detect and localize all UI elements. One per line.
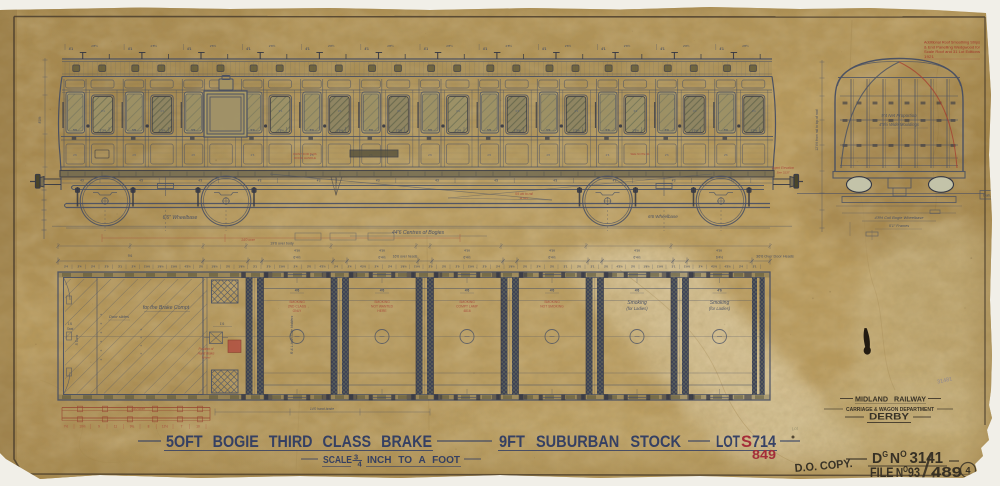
svg-text:SMOKING: SMOKING (374, 300, 390, 304)
svg-text:1'9½: 1'9½ (508, 265, 515, 269)
svg-text:3'1: 3'1 (515, 109, 519, 113)
svg-text:4'2: 4'2 (258, 179, 262, 183)
svg-text:1'9½: 1'9½ (400, 265, 407, 269)
svg-text:4'10: 4'10 (634, 249, 640, 253)
svg-text:2'4: 2'4 (132, 265, 136, 269)
svg-text:1'9½: 1'9½ (171, 265, 178, 269)
svg-text:4'6: 4'6 (465, 289, 470, 293)
svg-text:6'4½: 6'4½ (378, 256, 385, 260)
svg-text:2'6: 2'6 (546, 153, 550, 157)
svg-text:1'3½: 1'3½ (632, 129, 639, 133)
svg-text:4'1: 4'1 (128, 47, 133, 51)
svg-text:16'6 over heads: 16'6 over heads (393, 255, 418, 259)
svg-text:2'0: 2'0 (105, 265, 109, 269)
svg-text:5'0: 5'0 (605, 128, 609, 132)
svg-text:2'4: 2'4 (78, 265, 82, 269)
svg-text:14'0 over: 14'0 over (131, 407, 146, 411)
svg-text:2'6: 2'6 (251, 153, 255, 157)
svg-text:2'4: 2'4 (91, 265, 95, 269)
svg-text:10½: 10½ (79, 425, 86, 429)
svg-text:9'4 Net Proportion: 9'4 Net Proportion (881, 113, 917, 118)
svg-text:2'4: 2'4 (294, 265, 298, 269)
svg-text:3'1: 3'1 (338, 109, 342, 113)
svg-text:3'1: 3'1 (279, 109, 283, 113)
svg-text:4'1: 4'1 (720, 47, 725, 51)
svg-text:2'4: 2'4 (496, 265, 500, 269)
svg-text:4'1: 4'1 (187, 47, 192, 51)
svg-text:849: 849 (752, 448, 776, 462)
svg-text:Position of: Position of (199, 347, 215, 351)
svg-text:14'0 hand brake: 14'0 hand brake (310, 407, 334, 411)
svg-text:MIDLAND RAILWAY: MIDLAND RAILWAY (855, 395, 926, 404)
svg-text:4'6: 4'6 (635, 289, 640, 293)
svg-text:2'6: 2'6 (665, 153, 669, 157)
svg-text:2'6: 2'6 (487, 153, 491, 157)
svg-text:LOT: LOT (716, 433, 740, 451)
svg-text:5'0: 5'0 (665, 128, 669, 132)
svg-text:2'6: 2'6 (132, 153, 136, 157)
svg-text:2'8½: 2'8½ (328, 44, 335, 48)
svg-text:4'1: 4'1 (542, 47, 547, 51)
svg-text:ONLY: ONLY (293, 309, 303, 313)
svg-text:2'8½: 2'8½ (742, 44, 749, 48)
svg-text:2'8½: 2'8½ (150, 44, 157, 48)
svg-text:1'9½: 1'9½ (414, 265, 421, 269)
svg-text:4'6: 4'6 (380, 289, 385, 293)
svg-text:4'2½: 4'2½ (319, 265, 326, 269)
svg-text:1'3½: 1'3½ (455, 129, 462, 133)
svg-text:for the Brake Compt: for the Brake Compt (143, 305, 190, 311)
svg-text:SEE NOTE 31: SEE NOTE 31 (630, 152, 650, 156)
svg-text:1'9½: 1'9½ (144, 265, 151, 269)
svg-text:HERE: HERE (377, 309, 387, 313)
svg-text:2'8½: 2'8½ (387, 44, 394, 48)
svg-text:19'6 over body: 19'6 over body (270, 242, 294, 246)
svg-text:Agent Elevation: Agent Elevation (771, 166, 795, 170)
svg-text:1'9½: 1'9½ (279, 265, 286, 269)
svg-text:6'4½: 6'4½ (548, 256, 555, 260)
svg-text:COMPT LAMP: COMPT LAMP (456, 305, 479, 309)
svg-text:5'0: 5'0 (369, 128, 373, 132)
svg-text:3'1: 3'1 (591, 265, 595, 269)
svg-text:2'0: 2'0 (429, 265, 433, 269)
svg-text:1'9½: 1'9½ (657, 265, 664, 269)
svg-text:4'2: 4'2 (435, 179, 439, 183)
svg-text:4'1: 4'1 (305, 47, 310, 51)
svg-text:9FT SUBURBAN STOCK: 9FT SUBURBAN STOCK (499, 433, 681, 451)
svg-text:2'0: 2'0 (267, 265, 271, 269)
svg-text:2'6: 2'6 (606, 153, 610, 157)
svg-text:3'1: 3'1 (101, 109, 105, 113)
svg-text:4'1: 4'1 (483, 47, 488, 51)
svg-text:2'8½: 2'8½ (505, 44, 512, 48)
svg-text:2'6: 2'6 (73, 153, 77, 157)
svg-text:5'0: 5'0 (132, 128, 136, 132)
svg-text:3'1: 3'1 (564, 265, 568, 269)
svg-text:5'0: 5'0 (73, 128, 77, 132)
svg-text:R & L both Side Holders: R & L both Side Holders (290, 316, 294, 355)
svg-text:5'0: 5'0 (724, 128, 728, 132)
svg-text:8'0½: 8'0½ (38, 116, 42, 123)
svg-text:4'1: 4'1 (365, 47, 370, 51)
svg-text:3'1: 3'1 (634, 109, 638, 113)
svg-text:2'4: 2'4 (388, 265, 392, 269)
svg-text:5 Tons: 5 Tons (75, 334, 79, 345)
svg-text:1'9½: 1'9½ (238, 265, 245, 269)
svg-text:2'0: 2'0 (577, 265, 581, 269)
svg-text:4'1: 4'1 (69, 47, 74, 51)
svg-text:at tare: at tare (520, 196, 529, 200)
svg-text:2'0: 2'0 (199, 265, 203, 269)
svg-text:3'1: 3'1 (456, 109, 460, 113)
svg-text:12½: 12½ (162, 425, 169, 429)
svg-text:2'4: 2'4 (739, 265, 743, 269)
svg-text:4'1: 4'1 (246, 47, 251, 51)
svg-text:1'9½: 1'9½ (468, 265, 475, 269)
svg-text:4'2½: 4'2½ (616, 265, 623, 269)
svg-text:5OFT BOGIE THIRD CLASS BRAKE: 5OFT BOGIE THIRD CLASS BRAKE (166, 433, 432, 451)
svg-text:4'2½: 4'2½ (711, 265, 718, 269)
svg-text:1'9½: 1'9½ (684, 265, 691, 269)
svg-text:4'2: 4'2 (494, 179, 498, 183)
svg-text:7½: 7½ (64, 425, 69, 429)
svg-text:1'3½: 1'3½ (336, 129, 343, 133)
svg-text:1'3½: 1'3½ (573, 129, 580, 133)
svg-text:1'6: 1'6 (220, 322, 225, 326)
svg-text:Additional Roof Smoothing Stri: Additional Roof Smoothing Strips (924, 41, 980, 45)
svg-text:6'4½: 6'4½ (633, 256, 640, 260)
svg-text:2'8½: 2'8½ (446, 44, 453, 48)
svg-text:4'2: 4'2 (672, 179, 676, 183)
svg-text:4'2: 4'2 (553, 179, 557, 183)
svg-text:1'3½: 1'3½ (100, 129, 107, 133)
svg-text:2'4: 2'4 (348, 265, 352, 269)
svg-text:(for Ladies): (for Ladies) (709, 306, 731, 311)
svg-text:4'10: 4'10 (716, 249, 722, 253)
svg-text:4'1: 4'1 (660, 47, 665, 51)
svg-text:9¾: 9¾ (130, 425, 135, 429)
svg-text:6'6″ Wheelbase: 6'6″ Wheelbase (163, 215, 198, 221)
svg-text:2ND CLASS: 2ND CLASS (288, 305, 307, 309)
svg-text:3'1: 3'1 (753, 265, 757, 269)
svg-text:14'0 over: 14'0 over (241, 238, 256, 242)
svg-text:2'8½: 2'8½ (565, 44, 572, 48)
svg-text:4816: 4816 (463, 309, 471, 313)
svg-text:2'0: 2'0 (456, 265, 460, 269)
svg-text:S: S (741, 433, 752, 451)
svg-text:6'4½: 6'4½ (293, 256, 300, 260)
svg-text:2'8½: 2'8½ (624, 44, 631, 48)
svg-text:Wheel: Wheel (202, 356, 211, 360)
svg-text:4'8½ Coil Bogie Wheelbase: 4'8½ Coil Bogie Wheelbase (874, 215, 924, 220)
svg-text:(for Ladies): (for Ladies) (626, 306, 648, 311)
svg-text:4'10: 4'10 (549, 249, 555, 253)
svg-text:2'0: 2'0 (226, 265, 230, 269)
svg-text:10: 10 (196, 425, 200, 429)
svg-text:1'9½: 1'9½ (643, 265, 650, 269)
svg-text:2'6: 2'6 (428, 153, 432, 157)
svg-text:36'6 Over Door Heads: 36'6 Over Door Heads (756, 255, 794, 259)
svg-text:4'2: 4'2 (80, 179, 84, 183)
svg-text:1'3½: 1'3½ (691, 129, 698, 133)
svg-text:1'3½: 1'3½ (514, 129, 521, 133)
svg-text:2'0: 2'0 (550, 265, 554, 269)
svg-text:See 3137: See 3137 (777, 171, 790, 175)
svg-text:4'2: 4'2 (139, 179, 143, 183)
svg-text:5'0: 5'0 (310, 128, 314, 132)
svg-text:4'2½: 4'2½ (184, 265, 191, 269)
svg-text:5'0: 5'0 (487, 128, 491, 132)
svg-text:SMOKING: SMOKING (289, 300, 305, 304)
svg-text:4: 4 (965, 466, 970, 476)
svg-text:4'10: 4'10 (294, 249, 300, 253)
svg-text:3'1: 3'1 (574, 109, 578, 113)
svg-text:+: + (140, 328, 142, 332)
svg-text:2'6: 2'6 (191, 153, 195, 157)
svg-text:2'8½: 2'8½ (683, 44, 690, 48)
svg-text:2'4: 2'4 (699, 265, 703, 269)
svg-text:4'2½: 4'2½ (360, 265, 367, 269)
svg-text:5'0: 5'0 (546, 128, 550, 132)
svg-text:1'9½: 1'9½ (211, 265, 218, 269)
svg-text:Seat: Seat (67, 327, 74, 331)
svg-text:2'0: 2'0 (442, 265, 446, 269)
svg-text:3'1: 3'1 (672, 265, 676, 269)
svg-text:5'0: 5'0 (191, 128, 195, 132)
svg-text:Scale Roof and 31 Lot Editions: Scale Roof and 31 Lot Editions (924, 50, 980, 54)
svg-text:NOT SMOKING: NOT SMOKING (540, 305, 564, 309)
svg-text:8: 8 (148, 425, 150, 429)
svg-text:11: 11 (114, 425, 118, 429)
svg-text:2'0: 2'0 (483, 265, 487, 269)
svg-text:Door slides: Door slides (109, 314, 129, 319)
svg-text:DOOR HANDLE: DOOR HANDLE (294, 156, 316, 160)
svg-text:4'10: 4'10 (464, 249, 470, 253)
svg-text:3'1: 3'1 (160, 109, 164, 113)
svg-text:4'2½: 4'2½ (724, 265, 731, 269)
svg-text:& End Panelling Wedgwood for: & End Panelling Wedgwood for (924, 45, 981, 49)
svg-text:1'3½: 1'3½ (159, 129, 166, 133)
svg-text:3'1: 3'1 (397, 109, 401, 113)
svg-text:2'8½: 2'8½ (210, 44, 217, 48)
svg-text:12'4½ from rail to top of roof: 12'4½ from rail to top of roof (815, 109, 819, 150)
svg-text:2'4: 2'4 (64, 265, 68, 269)
svg-text:5'0: 5'0 (428, 128, 432, 132)
svg-text:SMOKING: SMOKING (544, 300, 560, 304)
svg-text:4'1: 4'1 (601, 47, 606, 51)
svg-text:+: + (140, 344, 142, 348)
svg-text:+: + (140, 336, 142, 340)
svg-text:2'0: 2'0 (631, 265, 635, 269)
svg-text:1'6: 1'6 (68, 322, 72, 326)
svg-text:DERBY: DERBY (869, 412, 910, 423)
svg-text:1'3½: 1'3½ (396, 129, 403, 133)
svg-text:4'6: 4'6 (295, 289, 300, 293)
svg-text:4'6: 4'6 (550, 289, 555, 293)
svg-text:SCALE: SCALE (323, 455, 352, 466)
svg-text:5'0: 5'0 (250, 128, 254, 132)
svg-text:9'6: 9'6 (128, 254, 133, 258)
svg-text:NOT WANTED: NOT WANTED (371, 305, 394, 309)
svg-text:SMOKING: SMOKING (459, 300, 475, 304)
svg-text:1'9½: 1'9½ (157, 265, 164, 269)
svg-text:3'1: 3'1 (752, 109, 756, 113)
svg-text:6'6 Wheelbase: 6'6 Wheelbase (648, 214, 678, 219)
svg-text:4'6: 4'6 (717, 289, 722, 293)
svg-text:3'1: 3'1 (118, 265, 122, 269)
svg-text:2'0: 2'0 (604, 265, 608, 269)
svg-text:7: 7 (181, 425, 183, 429)
svg-text:1'3½: 1'3½ (277, 129, 284, 133)
svg-text:2'6: 2'6 (724, 153, 728, 157)
svg-text:1'3½: 1'3½ (751, 129, 758, 133)
svg-text:3'1: 3'1 (693, 109, 697, 113)
svg-text:4'2: 4'2 (198, 179, 202, 183)
svg-text:2'0: 2'0 (307, 265, 311, 269)
svg-text:2'4: 2'4 (375, 265, 379, 269)
svg-text:2'4: 2'4 (334, 265, 338, 269)
svg-text:6'4½: 6'4½ (716, 256, 723, 260)
svg-text:1921: 1921 (924, 55, 934, 59)
svg-text:4'2: 4'2 (317, 179, 321, 183)
svg-text:2'0: 2'0 (523, 265, 527, 269)
svg-text:44'6 Centres of Bogies: 44'6 Centres of Bogies (392, 230, 445, 236)
svg-text:5'1″ Frames: 5'1″ Frames (889, 224, 909, 228)
svg-text:4'1: 4'1 (424, 47, 429, 51)
svg-text:6'4½: 6'4½ (463, 256, 470, 260)
svg-text:4'8½ Wide Mouldings: 4'8½ Wide Mouldings (879, 122, 920, 127)
svg-text:INCH TO A FOOT: INCH TO A FOOT (367, 455, 460, 466)
svg-text:4'10: 4'10 (379, 249, 385, 253)
svg-text:2'8½: 2'8½ (91, 44, 98, 48)
svg-text:3'1: 3'1 (253, 265, 257, 269)
svg-text:2'8½: 2'8½ (269, 44, 276, 48)
svg-text:+: + (140, 352, 142, 356)
svg-text:9: 9 (98, 425, 100, 429)
svg-text:2'4: 2'4 (537, 265, 541, 269)
svg-text:4'2: 4'2 (376, 179, 380, 183)
